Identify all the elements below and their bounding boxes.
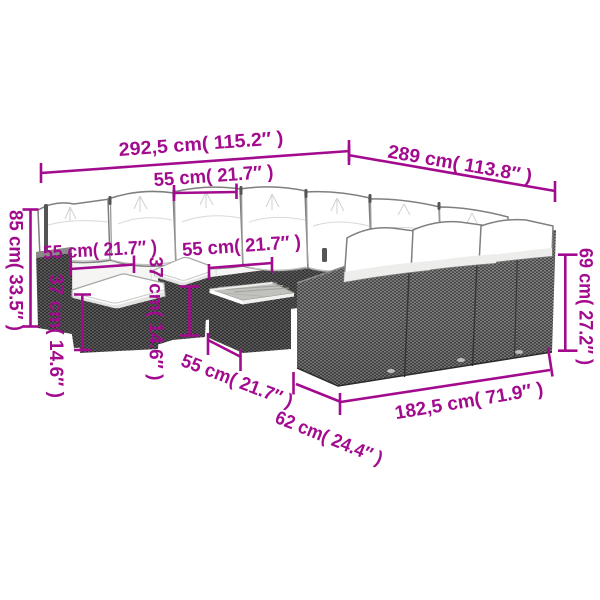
svg-text:37 cm( 14.6″ ): 37 cm( 14.6″ )	[145, 257, 166, 381]
svg-text:69 cm( 27.2″ ): 69 cm( 27.2″ )	[575, 248, 596, 365]
svg-text:85 cm( 33.5″ ): 85 cm( 33.5″ )	[4, 210, 25, 331]
svg-text:37 cm( 14.6″ ): 37 cm( 14.6″ )	[45, 274, 66, 398]
